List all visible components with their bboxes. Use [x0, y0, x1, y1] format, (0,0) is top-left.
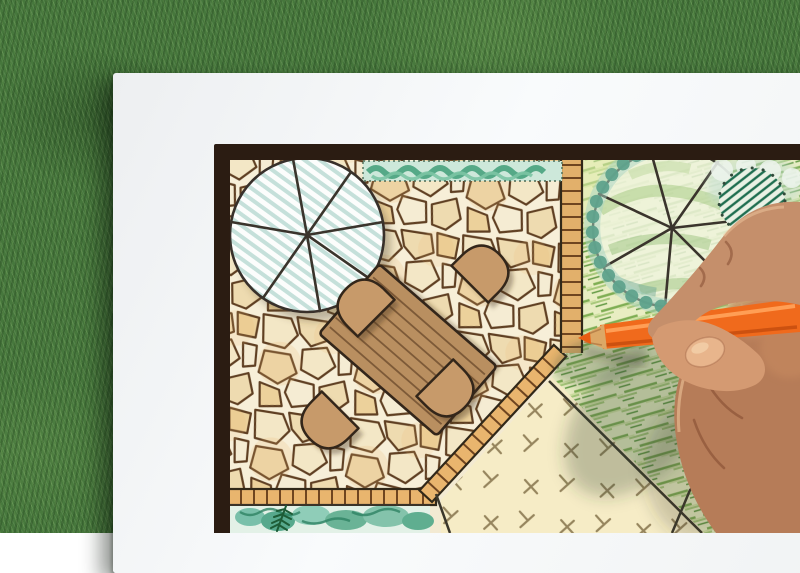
planting-bed — [230, 505, 434, 533]
plan-drawing — [0, 0, 800, 533]
hedge-strip — [363, 161, 562, 181]
photo-scene — [0, 0, 800, 533]
